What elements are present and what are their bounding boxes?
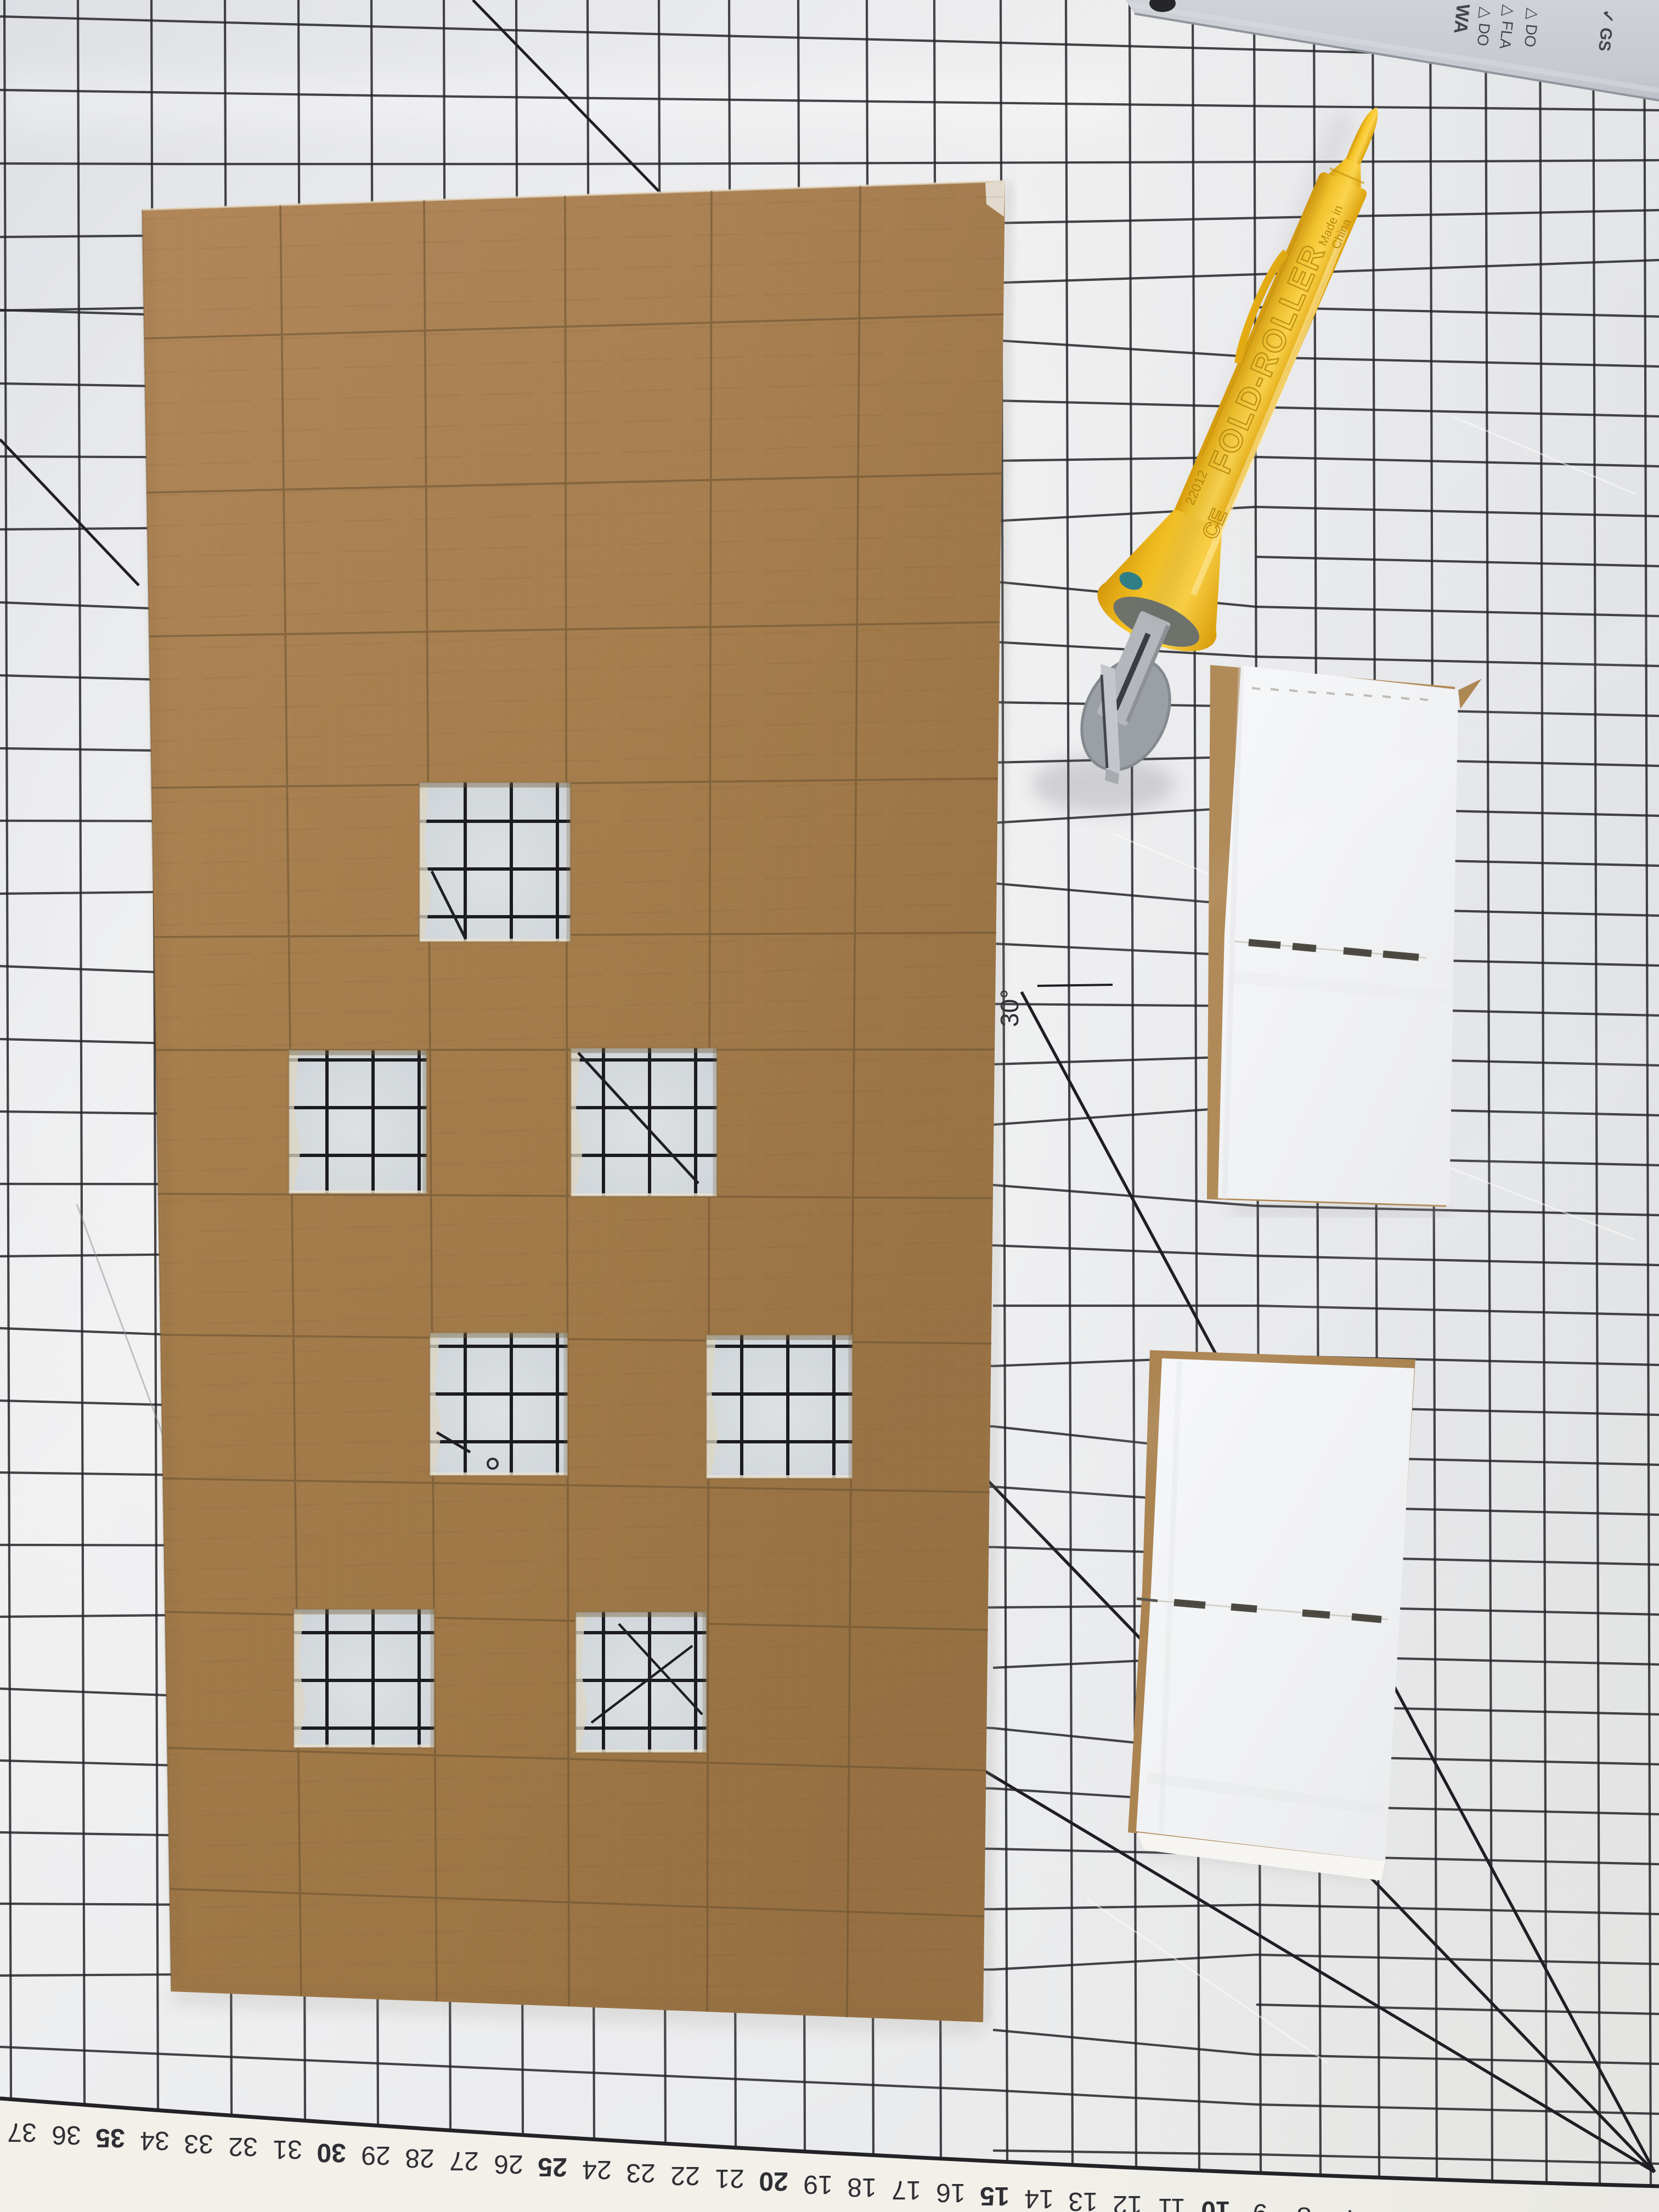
svg-text:6: 6: [1386, 2207, 1401, 2212]
svg-text:35: 35: [95, 2123, 125, 2152]
svg-text:24: 24: [582, 2155, 611, 2184]
svg-text:37: 37: [7, 2118, 36, 2147]
svg-text:28: 28: [405, 2143, 434, 2172]
svg-text:17: 17: [891, 2175, 921, 2204]
svg-text:31: 31: [273, 2135, 302, 2164]
svg-text:30: 30: [317, 2138, 346, 2167]
svg-text:19: 19: [803, 2170, 832, 2199]
svg-text:14: 14: [1024, 2184, 1053, 2212]
svg-text:8: 8: [1297, 2202, 1312, 2212]
svg-text:7: 7: [1341, 2204, 1356, 2212]
svg-text:WA: WA: [1449, 3, 1474, 35]
svg-text:11: 11: [1158, 2193, 1186, 2212]
svg-text:36: 36: [52, 2120, 81, 2149]
svg-text:34: 34: [140, 2126, 169, 2155]
svg-text:15: 15: [980, 2181, 1009, 2210]
svg-text:32: 32: [228, 2132, 257, 2161]
svg-text:21: 21: [715, 2164, 744, 2193]
svg-text:20: 20: [759, 2166, 788, 2196]
svg-text:29: 29: [361, 2141, 390, 2170]
svg-text:16: 16: [936, 2178, 965, 2207]
svg-text:12: 12: [1113, 2190, 1142, 2212]
svg-text:33: 33: [184, 2129, 213, 2158]
svg-text:23: 23: [626, 2158, 655, 2187]
svg-text:26: 26: [494, 2149, 523, 2179]
svg-text:13: 13: [1068, 2187, 1097, 2212]
svg-text:25: 25: [538, 2152, 567, 2181]
svg-text:27: 27: [449, 2146, 478, 2175]
svg-text:22: 22: [670, 2161, 699, 2190]
svg-text:9: 9: [1253, 2198, 1268, 2212]
svg-text:10: 10: [1201, 2196, 1230, 2212]
svg-text:18: 18: [847, 2172, 876, 2202]
